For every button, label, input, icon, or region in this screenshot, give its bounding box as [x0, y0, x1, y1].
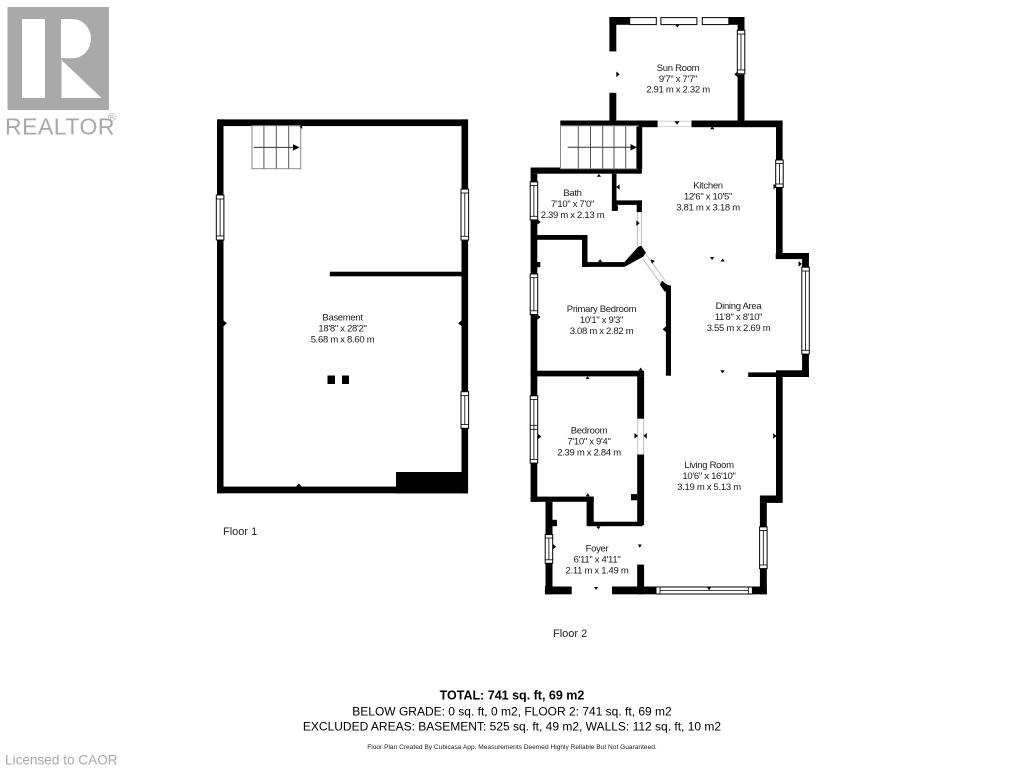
svg-text:Kitchen: Kitchen	[693, 180, 723, 191]
svg-text:3.19 m x 5.13 m: 3.19 m x 5.13 m	[677, 482, 741, 493]
svg-text:Floor 2: Floor 2	[553, 628, 587, 640]
svg-text:2.39 m x 2.13 m: 2.39 m x 2.13 m	[541, 210, 605, 221]
svg-text:3.81 m x 3.18 m: 3.81 m x 3.18 m	[676, 202, 740, 213]
svg-text:Licensed to CAOR: Licensed to CAOR	[5, 753, 118, 768]
svg-text:3.55 m x 2.69 m: 3.55 m x 2.69 m	[707, 323, 771, 334]
svg-text:Sun Room: Sun Room	[657, 63, 700, 74]
svg-text:6'11" x 4'11": 6'11" x 4'11"	[574, 555, 621, 566]
svg-text:3.08 m x 2.82 m: 3.08 m x 2.82 m	[570, 326, 634, 337]
svg-text:Foyer: Foyer	[586, 544, 609, 555]
svg-text:7'10" x 7'0": 7'10" x 7'0"	[551, 199, 594, 210]
svg-text:12'6" x 10'5": 12'6" x 10'5"	[684, 191, 732, 202]
svg-text:Floor 1: Floor 1	[223, 526, 257, 538]
svg-text:Floor Plan Created By Cubicasa: Floor Plan Created By Cubicasa App. Meas…	[367, 744, 657, 751]
svg-text:18'8" x 28'2": 18'8" x 28'2"	[318, 323, 366, 334]
svg-text:Basement: Basement	[322, 312, 363, 323]
svg-text:10'1" x 9'3": 10'1" x 9'3"	[580, 315, 623, 326]
svg-text:BELOW GRADE: 0 sq. ft, 0 m2, F: BELOW GRADE: 0 sq. ft, 0 m2, FLOOR 2: 74…	[352, 705, 672, 719]
svg-text:Bedroom: Bedroom	[571, 426, 608, 437]
svg-text:2.91 m x 2.32 m: 2.91 m x 2.32 m	[646, 85, 710, 96]
svg-text:Primary Bedroom: Primary Bedroom	[567, 304, 637, 315]
svg-text:REALTOR: REALTOR	[5, 114, 115, 140]
svg-text:Bath: Bath	[563, 188, 581, 199]
svg-text:Dining Area: Dining Area	[716, 301, 763, 312]
svg-text:2.39 m x 2.84 m: 2.39 m x 2.84 m	[557, 448, 621, 459]
svg-text:Living Room: Living Room	[684, 460, 734, 471]
svg-text:TOTAL: 741 sq. ft, 69 m2: TOTAL: 741 sq. ft, 69 m2	[440, 689, 585, 703]
svg-text:®: ®	[108, 112, 116, 124]
svg-text:10'6" x 16'10": 10'6" x 16'10"	[682, 471, 735, 482]
svg-text:2.11 m x 1.49 m: 2.11 m x 1.49 m	[566, 566, 629, 577]
svg-text:9'7" x 7'7": 9'7" x 7'7"	[659, 74, 697, 85]
svg-text:11'8" x 8'10": 11'8" x 8'10"	[715, 312, 763, 323]
svg-text:EXCLUDED AREAS: BASEMENT: 525: EXCLUDED AREAS: BASEMENT: 525 sq. ft, 49…	[303, 720, 721, 734]
svg-text:5.68 m x 8.60 m: 5.68 m x 8.60 m	[311, 334, 375, 345]
svg-text:7'10" x 9'4": 7'10" x 9'4"	[567, 437, 610, 448]
